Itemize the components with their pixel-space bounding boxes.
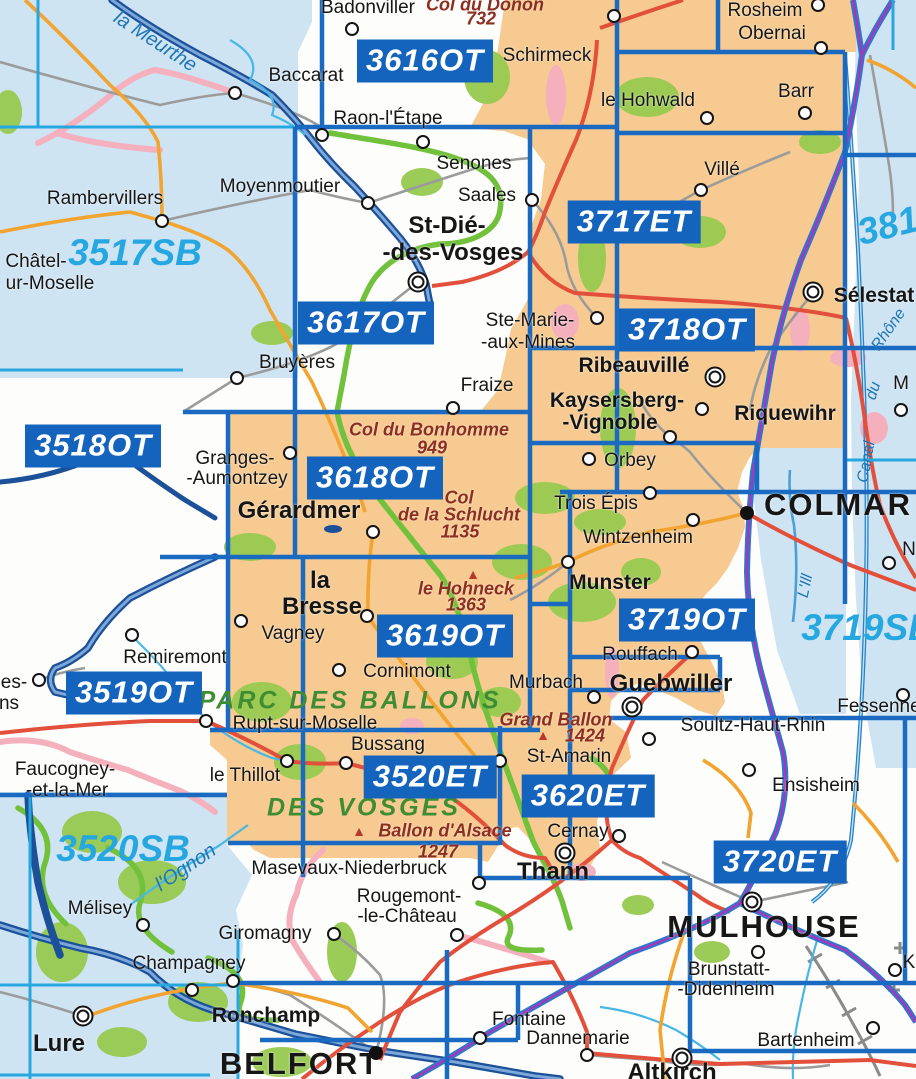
town-marker — [280, 754, 294, 768]
town-label: -aux-Mines — [481, 332, 575, 354]
sheet-code-3619OT[interactable]: 3619OT — [377, 615, 513, 658]
town-label: -Vignoble — [562, 411, 657, 435]
town-label: -le-Château — [357, 906, 456, 928]
town-marker — [226, 974, 240, 988]
town-label: Raon-l'Étape — [333, 108, 442, 130]
town-label: -des-Vosges — [383, 239, 524, 267]
town-marker — [607, 9, 621, 23]
town-label: Ronchamp — [212, 1004, 321, 1028]
peak-label: 1363 — [446, 595, 486, 616]
town-label: Barr — [778, 81, 814, 103]
town-marker — [686, 513, 700, 527]
sheet-code-3719OT[interactable]: 3719OT — [619, 599, 755, 642]
town-marker — [345, 22, 359, 36]
sheet-code-3616OT[interactable]: 3616OT — [357, 40, 493, 83]
town-label: Rouffach — [602, 644, 678, 666]
town-marker — [408, 272, 429, 293]
town-label: Granges- — [195, 448, 274, 470]
town-marker — [672, 1048, 693, 1069]
river-label: du — [863, 380, 886, 402]
town-label: Cornimont — [363, 661, 451, 683]
town-marker — [450, 928, 464, 942]
town-label: Trois Épis — [554, 493, 638, 515]
sheet-code-3718OT[interactable]: 3718OT — [619, 309, 755, 352]
town-marker — [622, 697, 643, 718]
sheet-code-3719SB[interactable]: 3719SB — [801, 607, 916, 649]
town-marker — [339, 756, 353, 770]
sheet-code-3620ET[interactable]: 3620ET — [522, 775, 655, 818]
town-label: le Thillot — [210, 765, 280, 787]
town-marker — [73, 1006, 94, 1027]
town-label: Villé — [704, 159, 740, 181]
town-label: Kaysersberg- — [550, 389, 684, 413]
town-marker — [866, 1021, 880, 1035]
town-label: Gérardmer — [238, 497, 361, 525]
town-label: Senones — [436, 153, 511, 175]
town-label: Bussang — [351, 734, 425, 756]
town-marker — [663, 430, 677, 444]
town-label: Cernay — [547, 821, 608, 843]
sheet-code-3717ET[interactable]: 3717ET — [568, 201, 701, 244]
town-marker — [125, 628, 139, 642]
river-label: Rhône — [868, 306, 910, 355]
town-label: Bartenheim — [757, 1030, 854, 1052]
town-marker — [643, 486, 657, 500]
town-label: Ste-Marie- — [486, 310, 575, 332]
town-marker — [700, 111, 714, 125]
town-label: ns — [0, 693, 19, 715]
town-marker — [136, 918, 150, 932]
town-marker — [32, 673, 46, 687]
map-labels: 3616OT3617OT3717ET3718OT3518OT3618OT3619… — [0, 0, 916, 1079]
sheet-code-3520SB[interactable]: 3520SB — [56, 828, 190, 870]
town-label: Rougemont- — [357, 886, 462, 908]
town-marker — [327, 927, 341, 941]
town-marker — [642, 732, 656, 746]
park-label: PARC DES BALLONS — [198, 687, 501, 716]
town-label: Châtel- — [5, 251, 66, 273]
town-label: Champagney — [132, 953, 245, 975]
town-label: Rupt-sur-Moselle — [233, 713, 378, 735]
town-marker — [360, 609, 374, 623]
town-marker — [882, 556, 896, 570]
sheet-code-3617OT[interactable]: 3617OT — [298, 302, 434, 345]
sheet-code-3520ET[interactable]: 3520ET — [364, 756, 497, 799]
town-label: St-Dié- — [408, 212, 485, 240]
town-marker — [814, 41, 828, 55]
peak-label: 1135 — [441, 522, 480, 543]
river-label: la Meurthe — [109, 7, 201, 78]
town-marker — [525, 193, 539, 207]
town-label: Remiremont — [123, 647, 226, 669]
town-label: ur-Moselle — [6, 273, 95, 295]
town-label: Sélestat — [834, 284, 915, 308]
town-marker — [315, 128, 329, 142]
town-marker — [416, 135, 430, 149]
town-marker — [555, 843, 576, 864]
town-label: BELFORT — [220, 1046, 380, 1079]
town-label: Orbey — [604, 450, 656, 472]
town-marker — [612, 829, 626, 843]
town-marker — [332, 663, 346, 677]
town-marker — [473, 1031, 487, 1045]
town-label: Badonviller — [321, 0, 415, 19]
town-label: Saales — [458, 185, 516, 207]
town-label: Lure — [33, 1030, 85, 1058]
town-label: Bruyères — [259, 352, 335, 374]
town-marker — [185, 983, 199, 997]
town-marker — [694, 183, 708, 197]
sheet-code-3618OT[interactable]: 3618OT — [307, 457, 443, 500]
peak-label: 1424 — [565, 726, 605, 747]
sheet-code-3720ET[interactable]: 3720ET — [714, 841, 847, 884]
peak-label: Ballon d'Alsace — [378, 821, 511, 842]
town-label: es- — [1, 672, 27, 694]
town-marker — [199, 714, 213, 728]
town-label: Rambervillers — [47, 188, 163, 210]
town-marker — [366, 525, 380, 539]
town-marker — [695, 402, 709, 416]
town-marker — [283, 446, 297, 460]
summit-triangle-icon: ▲ — [352, 823, 366, 839]
town-label: St-Amarin — [527, 746, 611, 768]
town-marker — [811, 0, 825, 12]
town-marker — [361, 196, 375, 210]
town-label: Ribeauvillé — [579, 354, 690, 378]
peak-label: 1247 — [418, 842, 458, 863]
town-marker — [561, 555, 575, 569]
town-marker — [228, 86, 242, 100]
town-marker — [472, 876, 486, 890]
town-marker — [751, 945, 765, 959]
town-label: Murbach — [509, 672, 583, 694]
peak-label: 949 — [417, 438, 447, 459]
town-marker — [685, 645, 699, 659]
town-marker — [369, 1046, 383, 1060]
sheet-code-3518OT[interactable]: 3518OT — [25, 425, 161, 468]
town-marker — [798, 106, 812, 120]
town-label: Moyenmoutier — [220, 176, 340, 198]
town-marker — [587, 690, 601, 704]
town-marker — [894, 403, 908, 417]
sheet-code-3519OT[interactable]: 3519OT — [66, 672, 202, 715]
town-label: Baccarat — [269, 65, 344, 87]
town-label: N — [902, 539, 916, 561]
town-label: Brunstatt- — [688, 959, 770, 981]
town-label: -Didenheim — [677, 979, 774, 1001]
town-label: Guebwiller — [610, 670, 733, 698]
town-label: Munster — [569, 571, 651, 595]
town-marker — [155, 214, 169, 228]
sheet-code-3517SB[interactable]: 3517SB — [68, 232, 202, 274]
town-label: Mélisey — [68, 898, 132, 920]
map-canvas[interactable]: 3616OT3617OT3717ET3718OT3518OT3618OT3619… — [0, 0, 916, 1079]
town-marker — [803, 282, 824, 303]
river-label: Canal — [855, 440, 880, 484]
town-marker — [888, 963, 902, 977]
town-label: -et-la-Mer — [26, 780, 108, 802]
town-marker — [740, 506, 754, 520]
town-label: Rosheim — [728, 0, 803, 22]
summit-triangle-icon: ▲ — [466, 566, 480, 582]
town-label: M — [893, 373, 909, 395]
town-marker — [582, 452, 596, 466]
town-label: Ensisheim — [772, 775, 860, 797]
town-label: K — [903, 952, 916, 974]
sheet-code-381[interactable]: 381 — [853, 198, 916, 254]
town-label: MULHOUSE — [667, 909, 860, 945]
town-marker — [590, 311, 604, 325]
summit-triangle-icon: ▲ — [536, 727, 550, 743]
town-label: Dannemarie — [526, 1028, 630, 1050]
river-label: L'Ill — [795, 573, 817, 600]
peak-label: 732 — [466, 9, 496, 30]
town-label: Schirmeck — [503, 45, 592, 67]
town-label: Obernai — [738, 23, 806, 45]
town-label: Fraize — [461, 375, 514, 397]
town-marker — [234, 614, 248, 628]
town-marker — [446, 401, 460, 415]
town-label: la — [310, 567, 330, 595]
town-label: Soultz-Haut-Rhin — [681, 715, 826, 737]
town-label: COLMAR — [764, 487, 912, 523]
town-label: Wintzenheim — [583, 527, 693, 549]
town-marker — [580, 1048, 594, 1062]
town-label: le Hohwald — [601, 90, 695, 112]
town-label: Thann — [517, 858, 589, 886]
town-marker — [230, 371, 244, 385]
town-label: Vagney — [261, 623, 324, 645]
town-marker — [742, 763, 756, 777]
town-label: Riquewihr — [734, 402, 836, 426]
town-label: Faucogney- — [15, 759, 115, 781]
town-label: Giromagny — [219, 923, 312, 945]
town-marker — [705, 367, 726, 388]
town-label: Bresse — [282, 593, 362, 621]
town-marker — [742, 892, 763, 913]
town-marker — [896, 688, 910, 702]
town-label: -Aumontzey — [186, 468, 287, 490]
